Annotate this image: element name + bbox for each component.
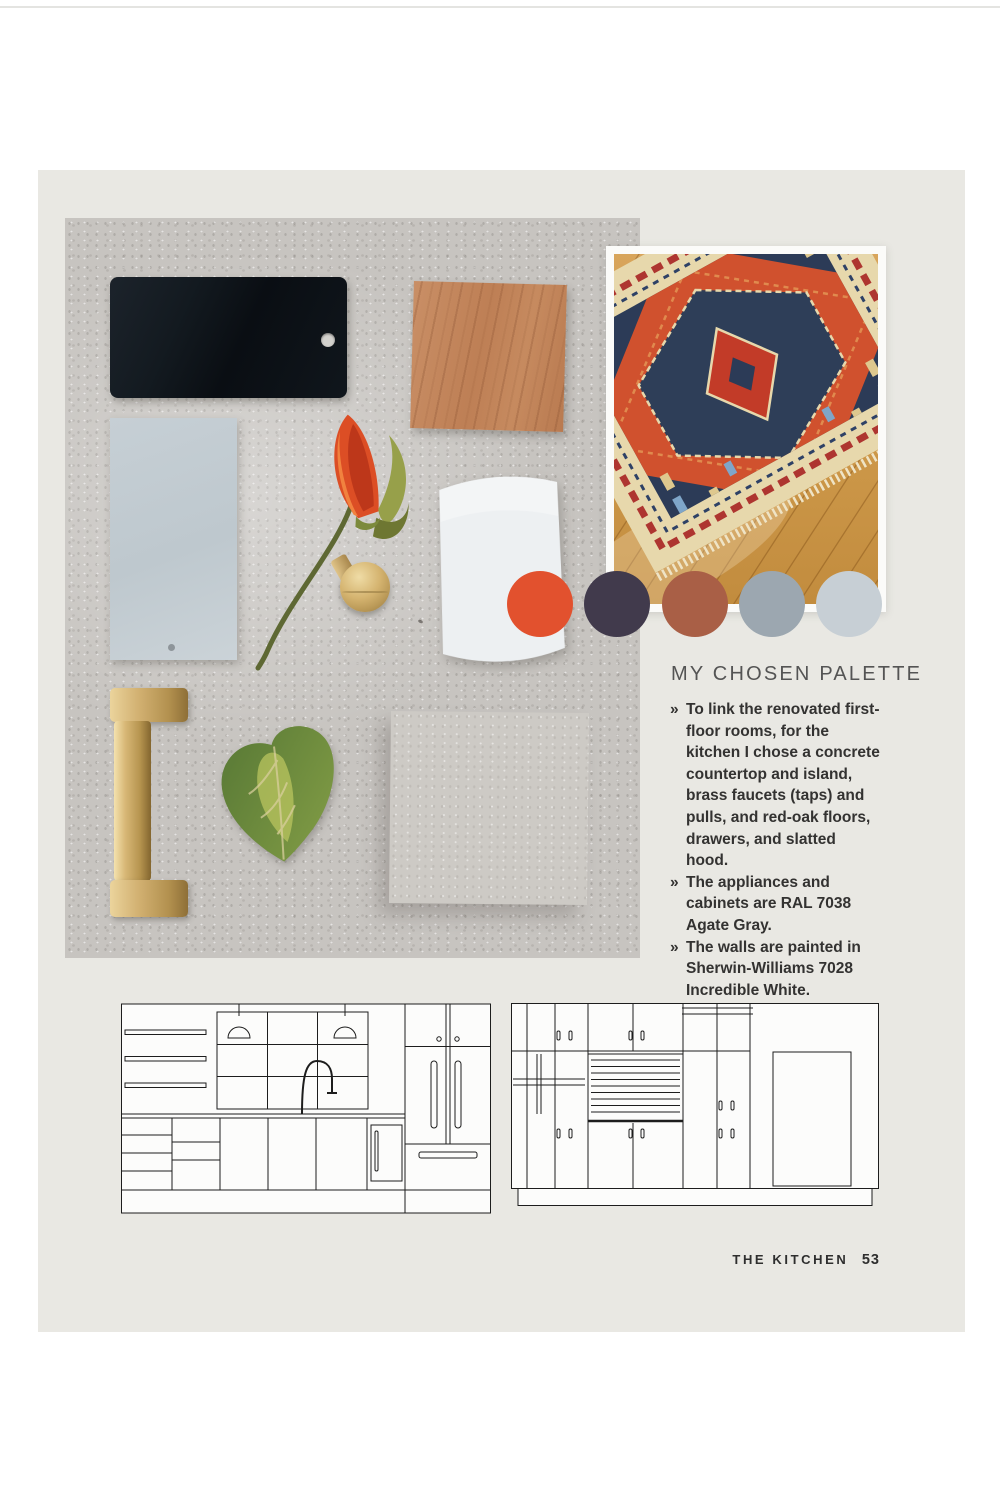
knob-edge-line (342, 591, 388, 593)
tulip-flower (250, 398, 430, 678)
brass-handle-bottom-cap (110, 880, 188, 917)
palette-swatch-plum (584, 571, 650, 637)
palette-swatch-terracotta (662, 571, 728, 637)
brass-knob (340, 562, 390, 612)
kitchen-elevation-drawing-right (510, 1002, 880, 1208)
sample-hole (321, 333, 335, 347)
kitchen-elevation-drawing-left (120, 1002, 492, 1215)
palette-notes: » To link the renovated first-floor room… (670, 699, 882, 1001)
note-text: The appliances and cabinets are RAL 7038… (686, 874, 851, 934)
sample-black-granite (110, 277, 347, 398)
note-item: » The appliances and cabinets are RAL 70… (670, 872, 882, 937)
palette-swatch-lightgray (816, 571, 882, 637)
philodendron-leaf (210, 720, 355, 870)
book-page: MY CHOSEN PALETTE » To link the renovate… (0, 0, 1000, 1500)
sample-wood-block (410, 281, 567, 432)
note-text: To link the renovated first-floor rooms,… (686, 701, 880, 869)
rug-photo-inset (606, 246, 886, 612)
palette-swatch-orange (507, 571, 573, 637)
note-marker: » (670, 699, 679, 721)
palette-heading: MY CHOSEN PALETTE (671, 663, 922, 686)
page-footer: THE KITCHEN 53 (480, 1251, 880, 1269)
sample-screw-hole (168, 644, 175, 651)
footer-section-label: THE KITCHEN (732, 1252, 848, 1267)
rug-photo (614, 254, 878, 604)
note-item: » To link the renovated first-floor room… (670, 699, 882, 872)
brass-handle-bar (114, 721, 151, 881)
note-marker: » (670, 872, 679, 894)
sample-white-door-panel (428, 458, 573, 677)
footer-page-number: 53 (862, 1252, 880, 1268)
page-top-edge-line (0, 6, 1000, 8)
note-text: The walls are painted in Sherwin-William… (686, 939, 861, 999)
sample-gray-paint-panel (110, 418, 237, 660)
palette-swatch-slate (739, 571, 805, 637)
brass-handle-top-cap (110, 688, 188, 722)
note-item: » The walls are painted in Sherwin-Willi… (670, 937, 882, 1002)
note-marker: » (670, 937, 679, 959)
sample-concrete-square (389, 711, 589, 905)
